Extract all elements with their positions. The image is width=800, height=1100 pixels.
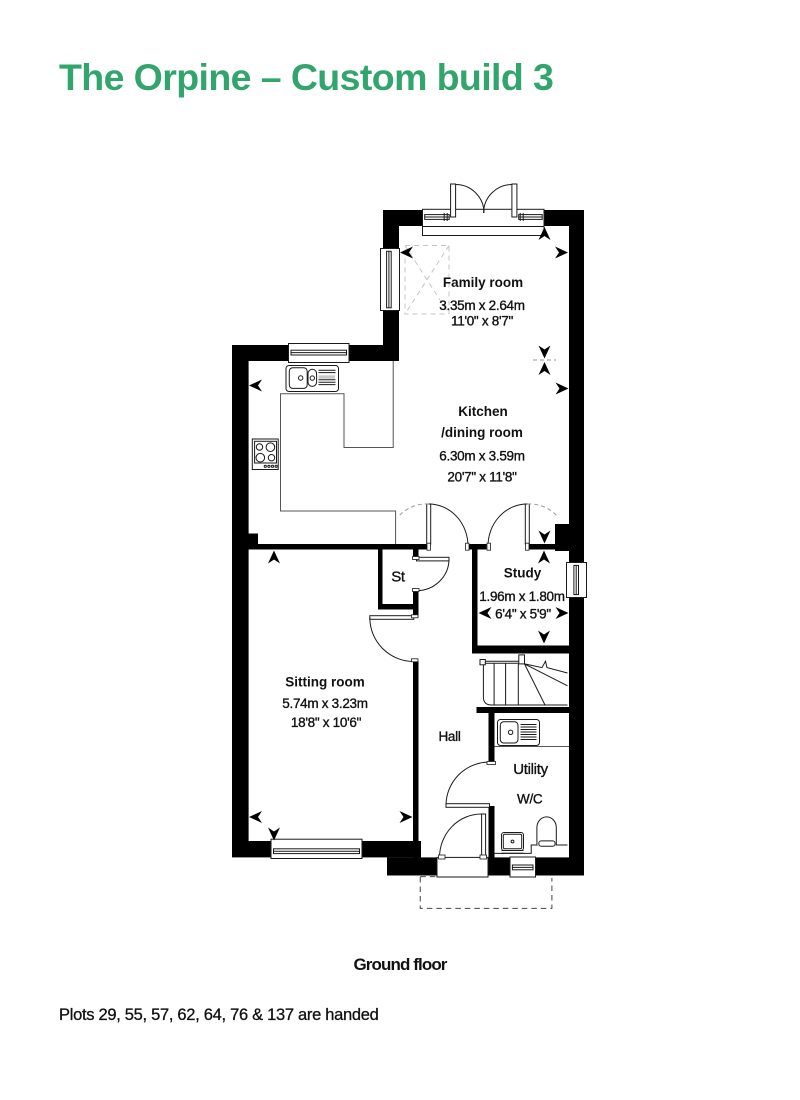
svg-text:1.96m x 1.80m: 1.96m x 1.80m (479, 589, 564, 604)
svg-text:Utility: Utility (513, 761, 548, 778)
svg-text:Study: Study (504, 566, 542, 581)
svg-text:20'7" x 11'8": 20'7" x 11'8" (447, 470, 517, 485)
svg-text:Sitting room: Sitting room (285, 675, 365, 690)
svg-text:6.30m x 3.59m: 6.30m x 3.59m (439, 449, 524, 464)
svg-text:6'4" x 5'9": 6'4" x 5'9" (495, 607, 551, 622)
svg-text:W/C: W/C (517, 792, 543, 807)
svg-text:Family room: Family room (443, 275, 523, 290)
svg-text:Kitchen: Kitchen (458, 404, 508, 419)
svg-text:3.35m x 2.64m: 3.35m x 2.64m (439, 298, 524, 313)
svg-text:5.74m x 3.23m: 5.74m x 3.23m (282, 696, 367, 711)
svg-text:11'0" x 8'7": 11'0" x 8'7" (451, 314, 513, 329)
svg-text:St: St (391, 569, 406, 586)
svg-text:18'8" x 10'6": 18'8" x 10'6" (291, 715, 362, 730)
svg-text:/dining room: /dining room (441, 425, 523, 440)
svg-text:Hall: Hall (438, 729, 460, 744)
